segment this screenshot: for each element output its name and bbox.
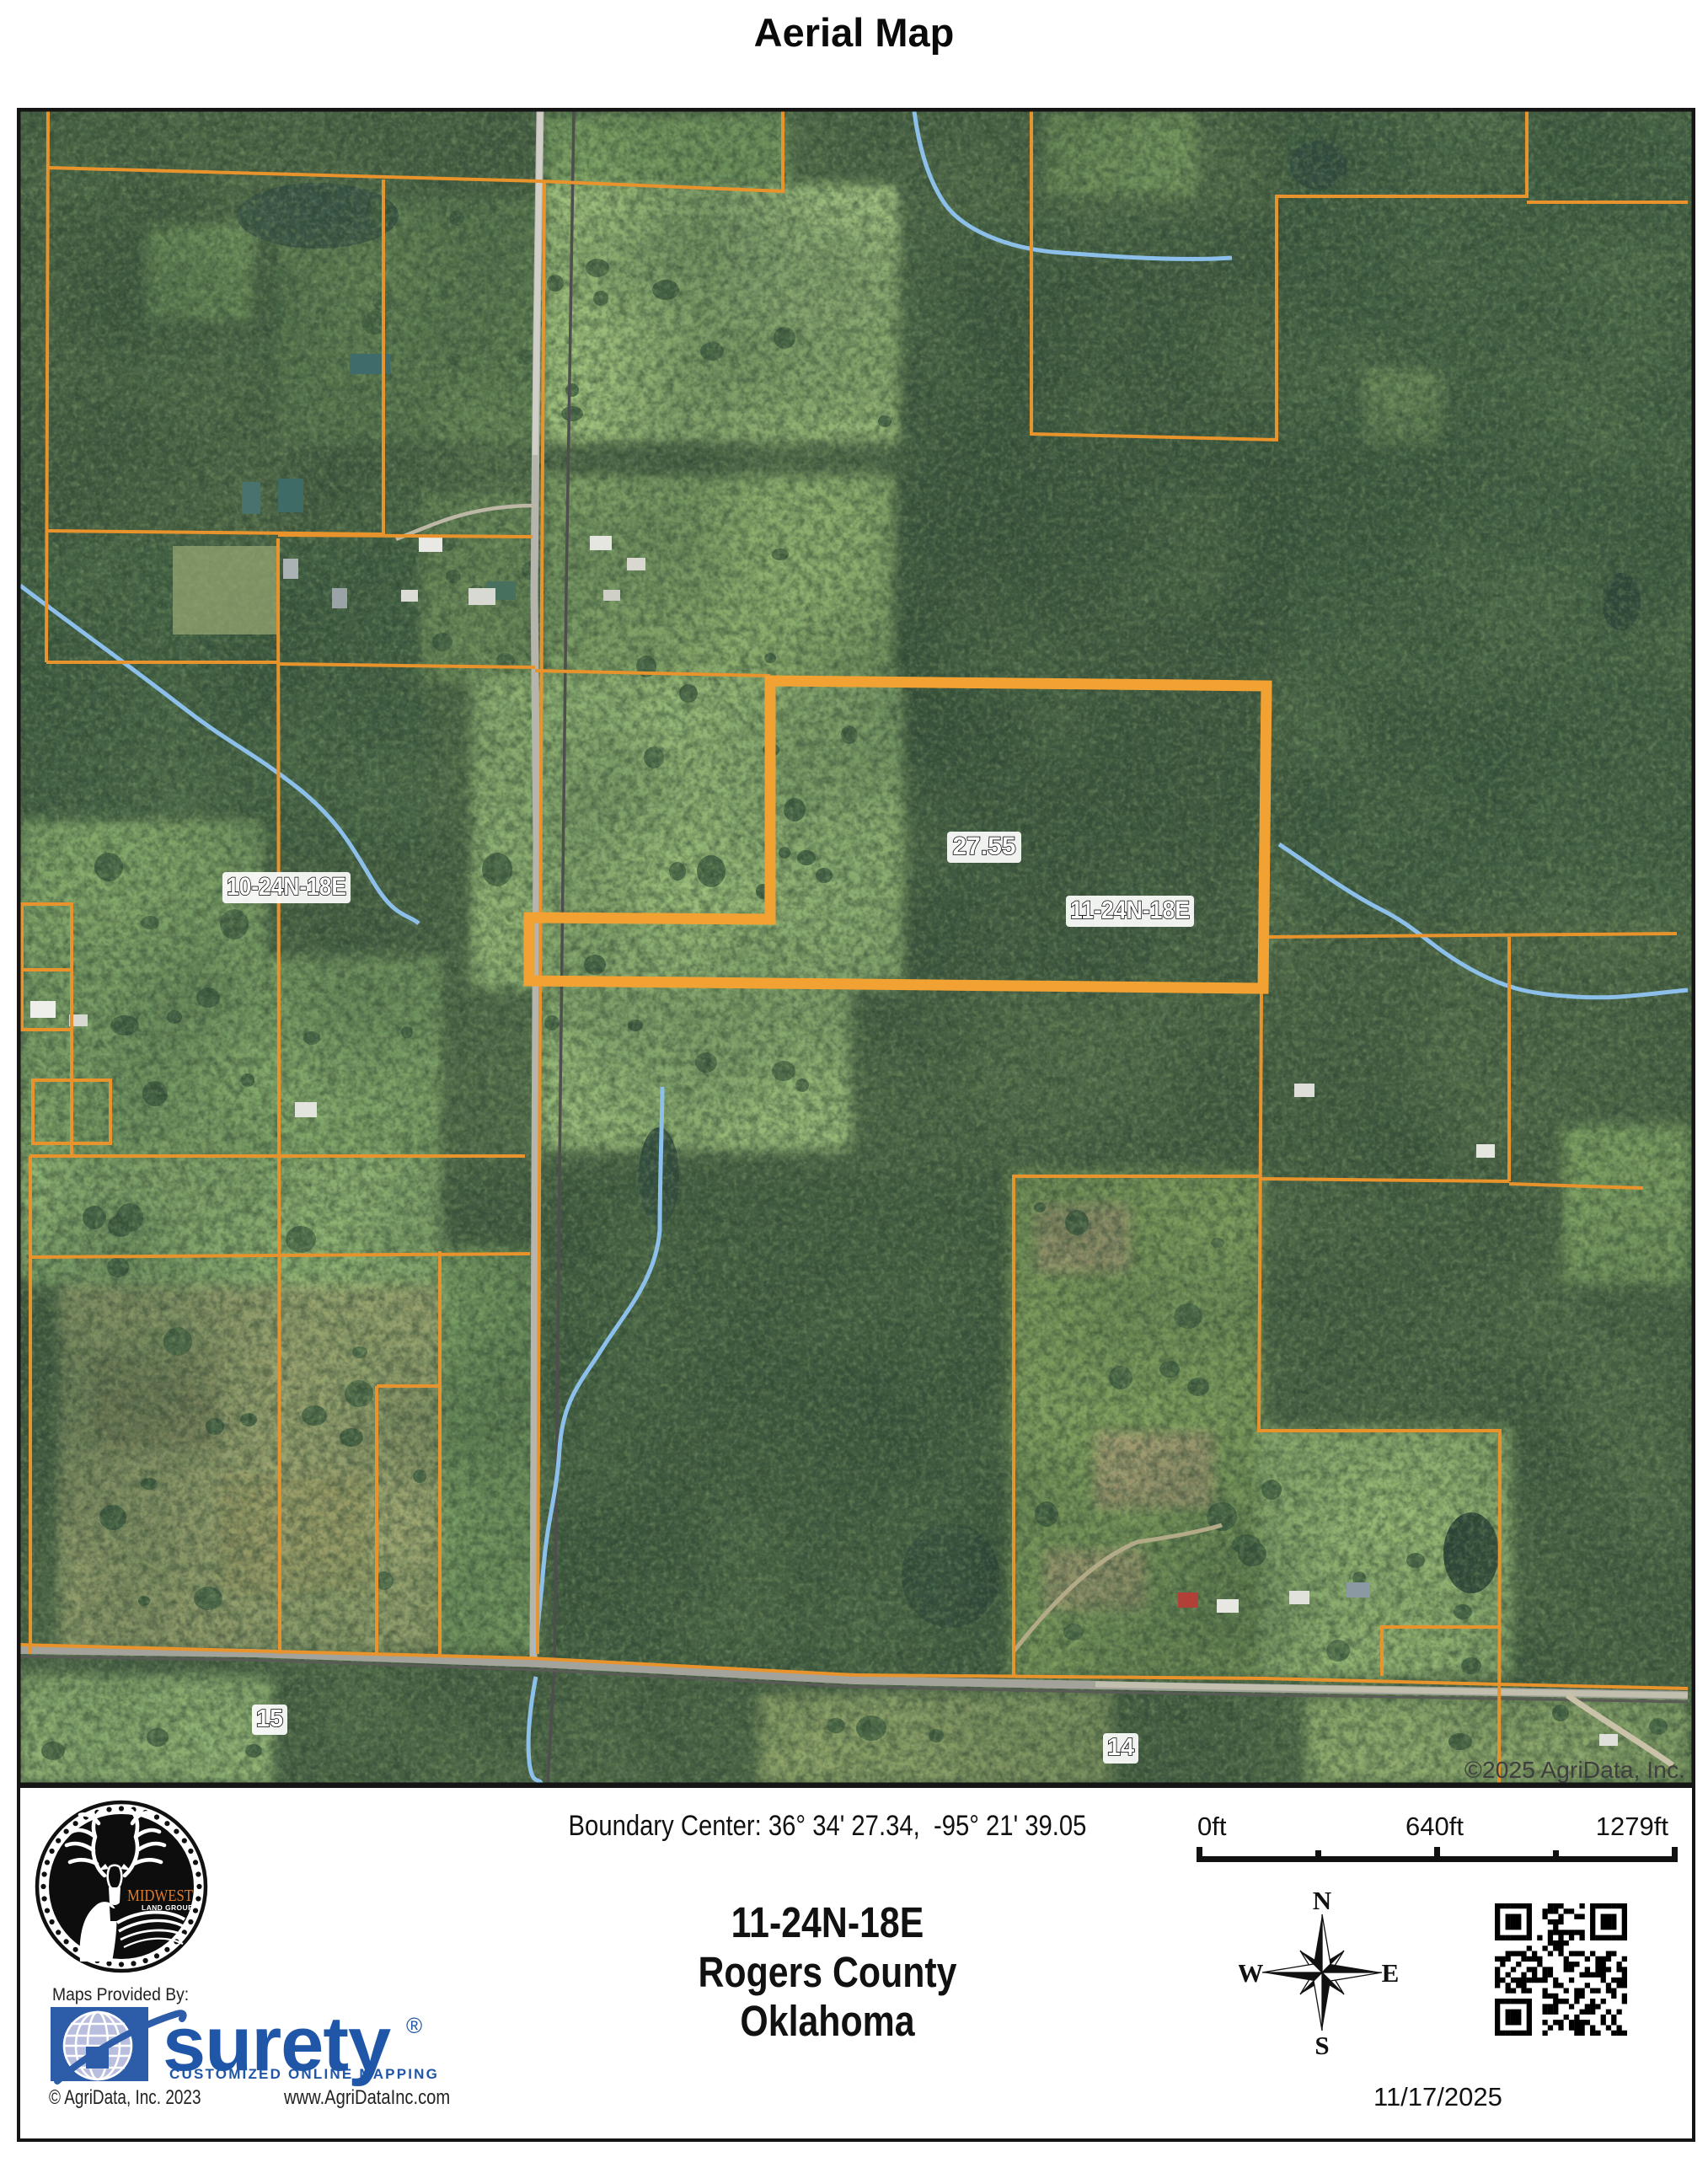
svg-text:MIDWEST: MIDWEST <box>127 1887 193 1905</box>
svg-text:27.55: 27.55 <box>952 832 1015 860</box>
svg-text:N: N <box>1313 1887 1331 1915</box>
svg-text:15: 15 <box>256 1705 283 1732</box>
svg-text:S: S <box>1314 2031 1329 2058</box>
svg-text:E: E <box>1382 1958 1400 1988</box>
svg-text:10-24N-18E: 10-24N-18E <box>227 873 346 901</box>
svg-text:14: 14 <box>1107 1734 1134 1761</box>
svg-text:©2025 AgriData, Inc.: ©2025 AgriData, Inc. <box>1464 1757 1685 1783</box>
svg-text:LAND GROUP: LAND GROUP <box>142 1903 193 1912</box>
svg-text:W: W <box>1239 1958 1264 1988</box>
svg-text:11-24N-18E: 11-24N-18E <box>1070 897 1190 924</box>
